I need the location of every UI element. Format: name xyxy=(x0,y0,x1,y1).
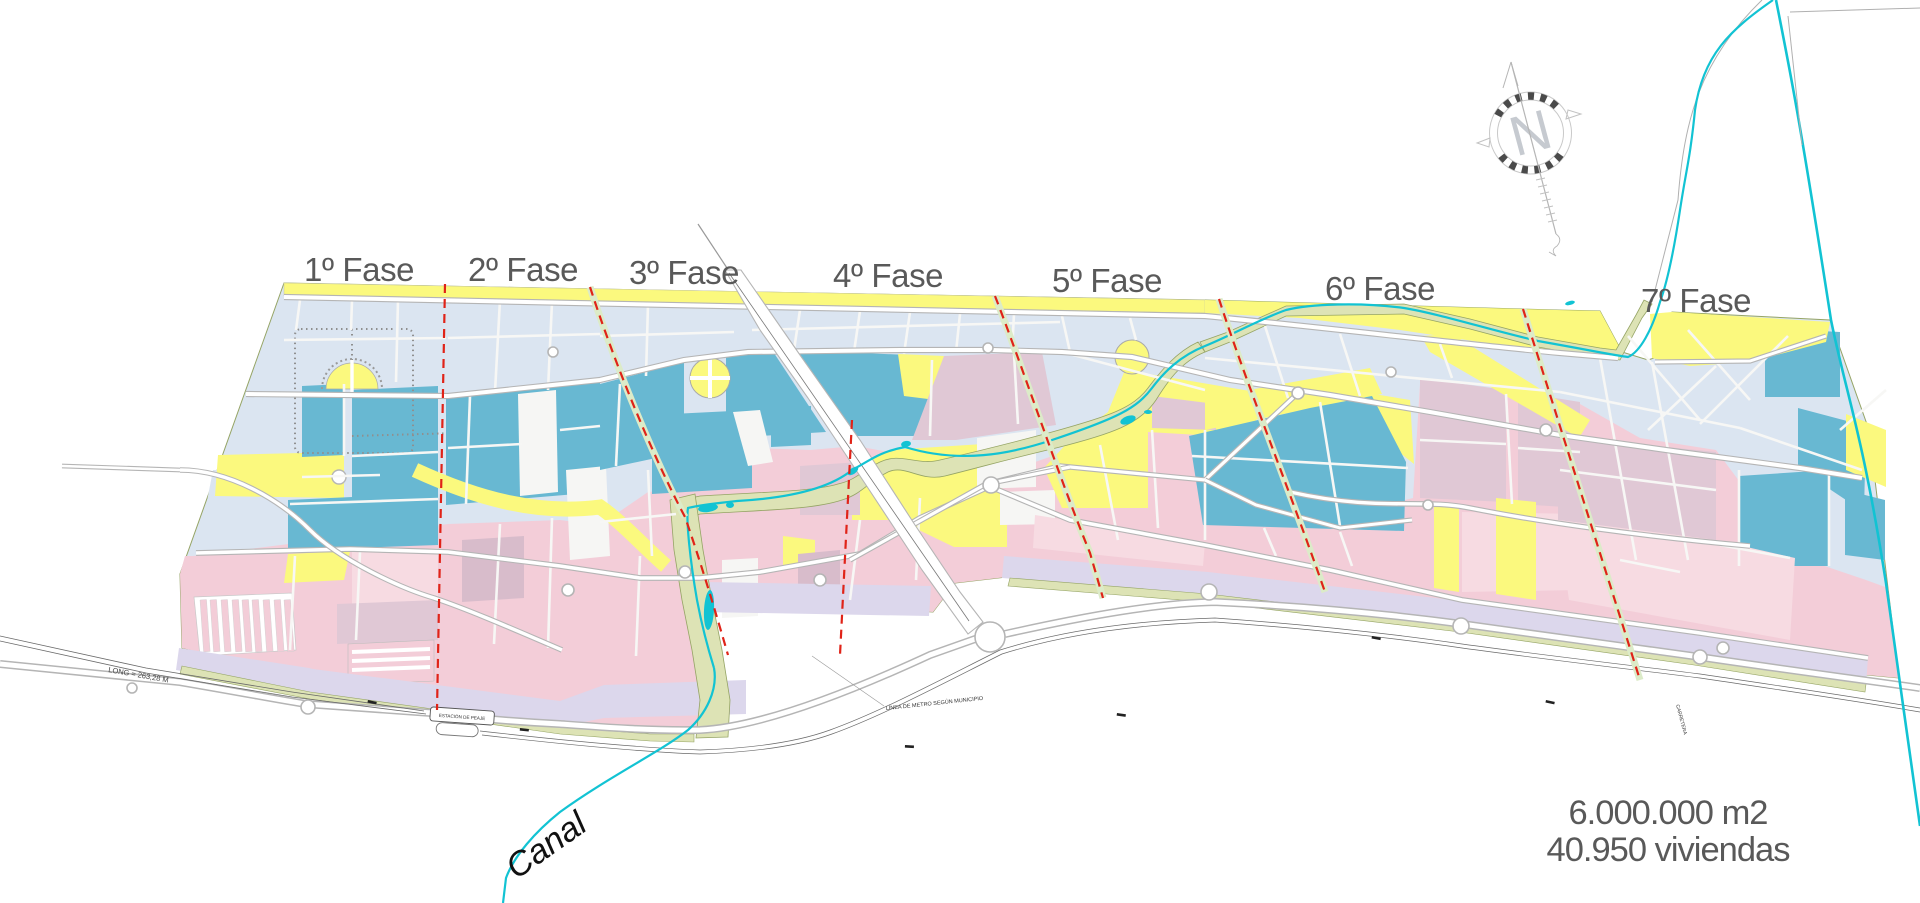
svg-text:6.000.000 m2: 6.000.000 m2 xyxy=(1569,794,1768,832)
svg-text:4º Fase: 4º Fase xyxy=(833,257,943,294)
svg-text:3º Fase: 3º Fase xyxy=(629,254,739,291)
svg-text:2º Fase: 2º Fase xyxy=(468,251,578,288)
svg-text:1º Fase: 1º Fase xyxy=(304,251,414,288)
svg-text:7º Fase: 7º Fase xyxy=(1641,282,1751,319)
svg-text:5º Fase: 5º Fase xyxy=(1052,262,1162,299)
svg-text:40.950 viviendas: 40.950 viviendas xyxy=(1547,831,1790,869)
svg-text:6º Fase: 6º Fase xyxy=(1325,270,1435,307)
